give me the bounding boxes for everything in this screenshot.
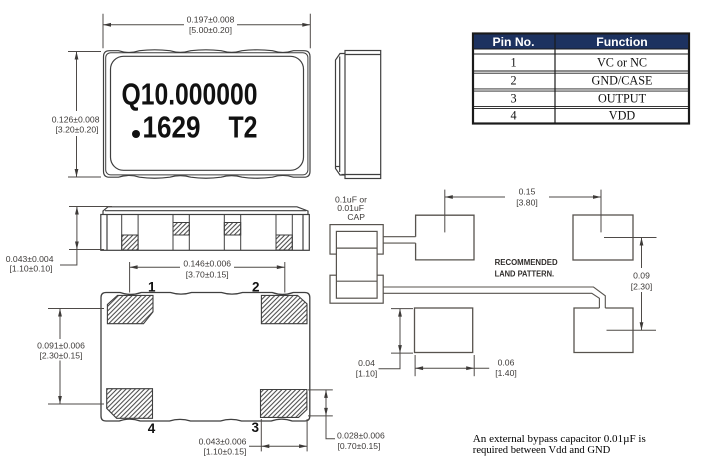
svg-text:0.043±0.004: 0.043±0.004 (6, 254, 54, 264)
svg-text:[3.70±0.15]: [3.70±0.15] (186, 269, 229, 279)
svg-text:2: 2 (510, 74, 516, 88)
svg-text:VDD: VDD (609, 109, 636, 123)
svg-text:0.09: 0.09 (633, 271, 650, 281)
svg-text:2: 2 (252, 280, 260, 295)
svg-text:0.04: 0.04 (358, 358, 375, 368)
svg-text:[5.00±0.20]: [5.00±0.20] (189, 25, 232, 35)
svg-text:0.091±0.006: 0.091±0.006 (37, 341, 85, 351)
svg-text:0.043±0.006: 0.043±0.006 (199, 436, 247, 446)
svg-text:OUTPUT: OUTPUT (598, 91, 647, 105)
svg-text:[1.10]: [1.10] (356, 369, 378, 379)
svg-text:1: 1 (148, 280, 156, 295)
svg-text:[3.20±0.20]: [3.20±0.20] (56, 125, 99, 135)
svg-text:required between Vdd and GND: required between Vdd and GND (473, 444, 611, 456)
svg-text:[1.40]: [1.40] (495, 368, 517, 378)
svg-text:4: 4 (148, 421, 156, 436)
svg-text:0.146±0.006: 0.146±0.006 (183, 259, 231, 269)
svg-text:3: 3 (510, 91, 516, 105)
svg-text:CAP: CAP (347, 212, 365, 222)
svg-text:T2: T2 (229, 110, 258, 145)
svg-text:4: 4 (510, 109, 516, 123)
svg-text:[3.80]: [3.80] (516, 198, 538, 208)
svg-text:[2.30]: [2.30] (631, 282, 653, 292)
svg-text:1629: 1629 (143, 110, 201, 145)
svg-text:[2.30±0.15]: [2.30±0.15] (40, 351, 83, 361)
svg-text:RECOMMENDED: RECOMMENDED (495, 257, 558, 267)
svg-text:Pin No.: Pin No. (493, 35, 535, 49)
svg-text:3: 3 (252, 420, 260, 435)
svg-text:0.028±0.006: 0.028±0.006 (337, 431, 385, 441)
svg-text:Function: Function (596, 35, 647, 49)
svg-text:0.15: 0.15 (519, 187, 536, 197)
svg-text:LAND PATTERN.: LAND PATTERN. (495, 268, 555, 278)
svg-text:GND/CASE: GND/CASE (592, 74, 653, 88)
svg-text:VC or NC: VC or NC (597, 56, 647, 70)
svg-text:0.126±0.008: 0.126±0.008 (52, 114, 100, 124)
svg-text:[1.10±0.15]: [1.10±0.15] (203, 447, 246, 457)
svg-text:1: 1 (510, 56, 516, 70)
svg-text:0.197±0.008: 0.197±0.008 (187, 14, 235, 24)
svg-text:0.06: 0.06 (498, 358, 515, 368)
svg-text:[1.10±0.10]: [1.10±0.10] (10, 264, 53, 274)
svg-text:Q10.000000: Q10.000000 (122, 77, 258, 112)
svg-text:[0.70±0.15]: [0.70±0.15] (338, 441, 381, 451)
